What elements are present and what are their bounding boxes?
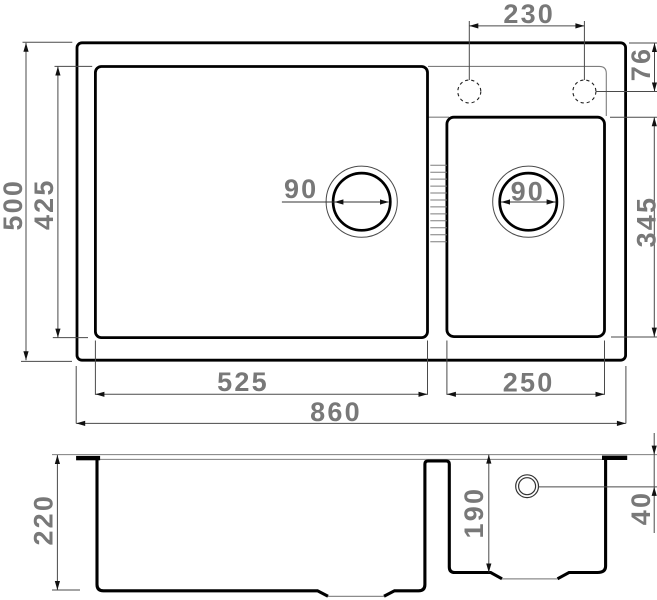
svg-text:525: 525 (217, 367, 269, 397)
svg-text:860: 860 (310, 397, 362, 427)
svg-text:425: 425 (29, 178, 59, 230)
svg-text:345: 345 (631, 196, 657, 248)
svg-text:190: 190 (459, 487, 489, 539)
svg-text:220: 220 (29, 494, 59, 546)
svg-text:230: 230 (503, 0, 555, 29)
svg-text:90: 90 (511, 176, 545, 206)
svg-text:90: 90 (284, 174, 318, 204)
svg-text:40: 40 (626, 491, 656, 525)
svg-text:76: 76 (626, 47, 656, 81)
svg-text:500: 500 (0, 179, 28, 231)
svg-text:250: 250 (503, 367, 555, 397)
